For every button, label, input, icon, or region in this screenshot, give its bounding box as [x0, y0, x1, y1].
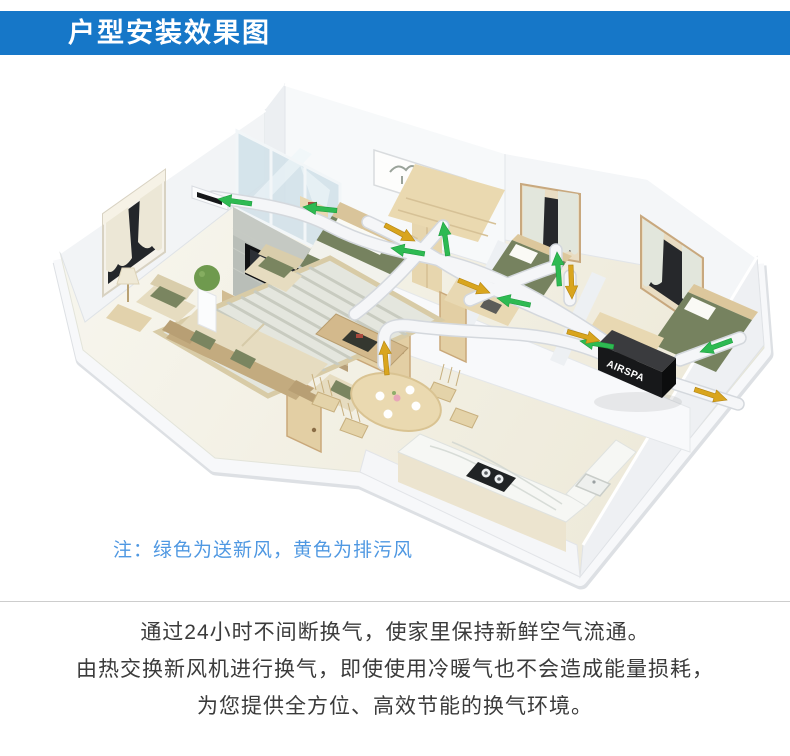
- floorplan-scene: AIRSPA 注：绿色为送: [0, 55, 790, 603]
- description-line: 由热交换新风机进行换气，即使使用冷暖气也不会造成能量损耗，: [0, 651, 790, 688]
- description-line: 通过24小时不间断换气，使家里保持新鲜空气流通。: [0, 614, 790, 651]
- page-title: 户型安装效果图: [0, 11, 790, 55]
- floorplan-3d-render: AIRSPA: [0, 55, 790, 603]
- page: 户型安装效果图: [0, 0, 790, 756]
- header-bar: 户型安装效果图: [0, 11, 790, 55]
- description-line: 为您提供全方位、高效节能的换气环境。: [0, 688, 790, 725]
- floor-plant: [194, 265, 220, 332]
- section-divider: [0, 601, 790, 602]
- legend-note: 注：绿色为送新风，黄色为排污风: [113, 535, 413, 562]
- product-description: 通过24小时不间断换气，使家里保持新鲜空气流通。 由热交换新风机进行换气，即使使…: [0, 614, 790, 725]
